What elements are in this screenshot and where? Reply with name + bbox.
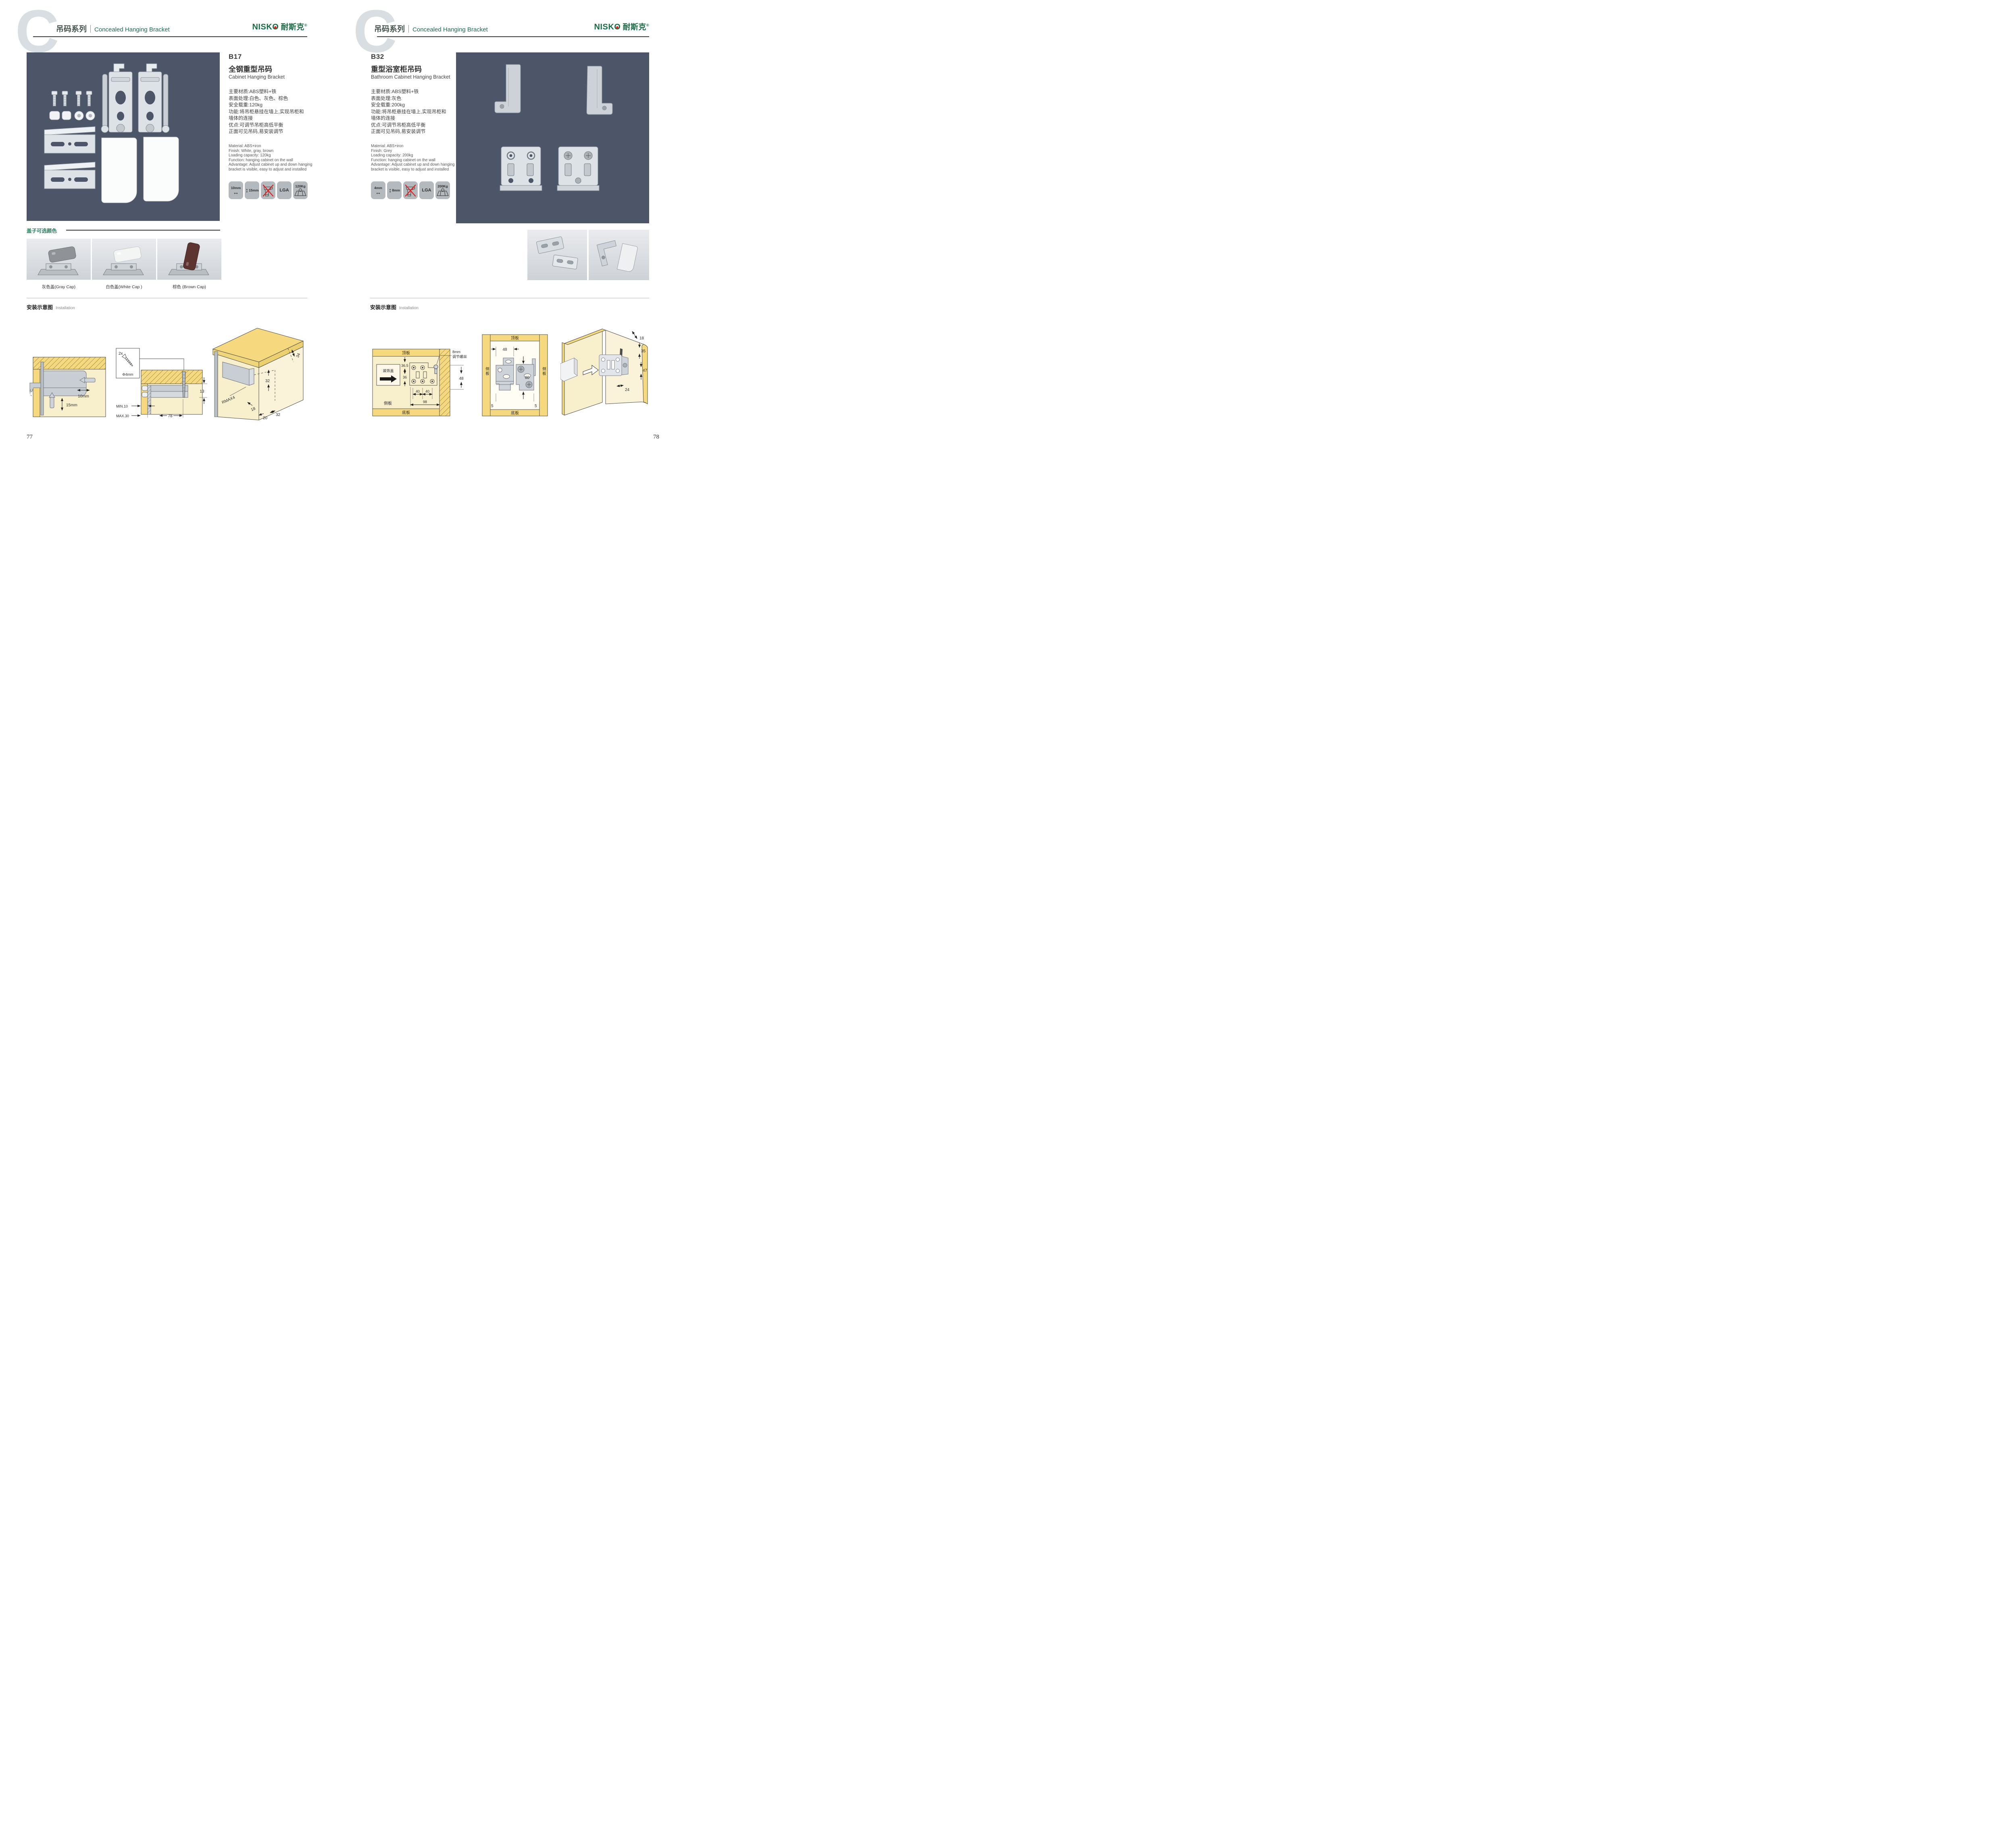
spec-line: bracket is visible, easy to adjust and i… — [229, 167, 312, 172]
dim-label: 48 — [502, 347, 507, 352]
cap-photo-gray — [27, 239, 91, 280]
dim-label: 10mm — [78, 394, 89, 399]
detail-photo-bracket-image — [589, 230, 649, 280]
logo-cn: 耐斯克 — [623, 23, 646, 31]
load-value: 120Kg — [295, 184, 306, 188]
spec-line: 功能:将吊柜悬挂在墙上,实现吊柜和 — [229, 108, 304, 115]
dim-label: 5 — [491, 404, 494, 408]
page-number-left: 77 — [27, 434, 33, 441]
installation-diagram-3-left: 34 32 RMAX4 18 20 32 — [209, 323, 306, 422]
section-divider-left — [27, 298, 307, 298]
installation-title-en: Installation — [56, 306, 75, 310]
feature-icons-right: 4mm ↔ ↕ 8mm LGA 200Kg — [371, 181, 450, 199]
spec-line: 表面处理:白色、灰色、棕色 — [229, 95, 304, 102]
spec-line: 正面可见吊码,易安装调节 — [371, 128, 446, 135]
nisko-logo: NISKO耐斯克® — [590, 21, 649, 32]
icon-tile-no-drill — [403, 181, 418, 199]
cap-label-gray: 灰色盖(Gray Cap) — [27, 284, 91, 290]
registered-mark: ® — [646, 23, 649, 27]
spec-line: 安全载重:120kg — [229, 102, 304, 108]
panel-label-top: 顶板 — [402, 350, 410, 356]
cert-label: LGA — [279, 188, 289, 193]
icon-tile-height: ↕ 15mm — [245, 181, 259, 199]
no-drill-icon — [404, 183, 417, 198]
dim-label: 20 — [263, 416, 268, 420]
horizontal-arrow-icon: ↔ — [375, 190, 381, 195]
panel-label-bottom: 底板 — [511, 410, 519, 416]
panel-label-side-right: 侧板 — [541, 367, 546, 376]
detail-photo-plates-image — [527, 230, 587, 280]
section-divider-right — [370, 298, 649, 298]
logo-cn: 耐斯克 — [281, 23, 304, 31]
icon-tile-cert: LGA — [419, 181, 434, 199]
specs-en-right: Material: ABS+iron Finish: Grey Loading … — [371, 144, 454, 172]
dim-label: 98 — [423, 400, 427, 404]
screw-dia-label: Φ4mm — [122, 372, 133, 376]
installation-diagram-1-right: 顶板 底板 侧板 装饰盖 36.5 36 40 — [371, 347, 472, 419]
spec-line: 墙体的连接 — [371, 115, 446, 122]
caps-section-title: 盖子可选颜色 — [27, 227, 57, 234]
installation-diagram-3-right: 18 35 47 24 — [560, 325, 652, 416]
catalog-spread: C 吊码系列Concealed Hanging Bracket NISKO耐斯克… — [0, 0, 676, 462]
panel-label-side-left: 侧板 — [484, 367, 489, 376]
screw-qty-label: 2x — [119, 352, 123, 356]
dim-label: 32 — [276, 413, 281, 417]
panel-label-top: 顶板 — [511, 335, 519, 341]
icon-tile-height: ↕ 8mm — [387, 181, 402, 199]
series-title-en: Concealed Hanging Bracket — [412, 26, 488, 33]
logo-o-target-icon: O — [614, 23, 621, 32]
dim-label: 18 — [639, 336, 644, 341]
cert-label: LGA — [422, 188, 431, 193]
series-header-right: 吊码系列Concealed Hanging Bracket — [374, 23, 488, 34]
load-value: 200Kg — [437, 184, 448, 188]
nisko-logo: NISKO耐斯克® — [248, 21, 307, 32]
product-photo-b17 — [27, 52, 220, 221]
product-title-cn-right: 重型浴室柜吊码 — [371, 64, 422, 74]
installation-title-cn: 安装示意图 — [27, 304, 53, 310]
specs-cn-left: 主要材质:ABS塑料+铁 表面处理:白色、灰色、棕色 安全载重:120kg 功能… — [229, 88, 304, 135]
product-code-b17: B17 — [229, 53, 242, 61]
installation-title-left: 安装示意图Installation — [27, 303, 75, 311]
feature-icons-left: 10mm ↔ ↕ 15mm LGA 120Kg — [229, 181, 308, 199]
cover-label: 装饰盖 — [383, 368, 394, 373]
installation-diagram-1-left: 10mm 15mm — [28, 347, 109, 420]
dim-label: 40 — [425, 389, 429, 393]
spec-line: Advantage: Adjust cabinet up and down ha… — [229, 162, 312, 167]
series-title-cn: 吊码系列 — [56, 25, 87, 33]
specs-en-left: Material: ABS+iron Finish: White, gray, … — [229, 144, 312, 172]
installation-title-en: Installation — [399, 306, 419, 310]
vertical-arrow-icon: ↕ — [245, 188, 248, 193]
screw-label-2: 调节螺丝 — [452, 354, 467, 359]
spec-line: Material: ABS+iron — [371, 144, 454, 149]
panel-label-side: 侧板 — [384, 401, 392, 406]
icon-tile-width: 10mm ↔ — [229, 181, 243, 199]
dim-label: 15mm — [66, 403, 77, 408]
cap-label-white: 白色盖(White Cap ) — [92, 284, 156, 290]
logo-text: NISK — [252, 23, 272, 31]
product-code-b32: B32 — [371, 53, 384, 61]
dim-label: 80 — [525, 376, 530, 380]
product-title-cn-left: 全钢重型吊码 — [229, 64, 272, 74]
installation-diagram-2-right: 顶板 底板 48 80 5 5 — [481, 333, 549, 418]
product-photo-b32-image — [456, 52, 649, 223]
product-photo-b17-image — [27, 52, 220, 221]
dim-label: 13 — [200, 389, 204, 394]
installation-title-cn: 安装示意图 — [370, 304, 396, 310]
series-header-left: 吊码系列Concealed Hanging Bracket — [56, 23, 170, 34]
header-separator — [90, 25, 91, 33]
screw-label-1: 8mm — [452, 350, 460, 354]
spec-line: 主要材质:ABS塑料+铁 — [229, 88, 304, 95]
specs-cn-right: 主要材质:ABS塑料+铁 表面处理:灰色 安全载重:200kg 功能:将吊柜悬挂… — [371, 88, 446, 135]
series-title-cn: 吊码系列 — [374, 25, 405, 33]
icon-tile-load: 200Kg — [435, 181, 450, 199]
header-rule-left — [33, 36, 307, 37]
no-drill-icon — [262, 183, 274, 198]
logo-o-target-icon: O — [272, 23, 279, 32]
height-value: 15mm — [249, 188, 259, 192]
cap-photo-brown — [157, 239, 221, 280]
dim-label: 24 — [625, 388, 630, 392]
caps-section-rule — [66, 230, 220, 231]
spec-line: Function: hanging cabinet on the wall — [229, 158, 312, 163]
dim-label: 5 — [535, 404, 537, 408]
panel-label-bottom: 底板 — [402, 410, 410, 415]
installation-title-right: 安装示意图Installation — [370, 303, 419, 311]
page-number-right: 78 — [653, 434, 659, 441]
spec-line: Finish: Grey — [371, 149, 454, 154]
horizontal-arrow-icon: ↔ — [233, 190, 239, 195]
registered-mark: ® — [304, 23, 307, 27]
spec-line: Loading capacity: 200kg — [371, 153, 454, 158]
icon-tile-cert: LGA — [277, 181, 292, 199]
spec-line: 正面可见吊码,易安装调节 — [229, 128, 304, 135]
dim-label: 32 — [265, 379, 270, 383]
brown-cap-image — [157, 239, 221, 280]
dim-label: MIN.10 — [116, 404, 128, 408]
weight-icon — [436, 188, 450, 196]
dim-label: 36 — [403, 375, 407, 379]
cap-photo-white — [92, 239, 156, 280]
weight-icon — [294, 188, 307, 196]
spec-line: 表面处理:灰色 — [371, 95, 446, 102]
detail-photo-plates — [527, 230, 587, 280]
spec-line: 优点:可调节吊柜高低平衡 — [371, 122, 446, 129]
header-rule-right — [377, 36, 649, 37]
spec-line: 墙体的连接 — [229, 115, 304, 122]
dim-label: MAX.30 — [116, 414, 129, 418]
product-title-en-left: Cabinet Hanging Bracket — [229, 74, 285, 80]
dim-label: 36.5 — [401, 364, 408, 368]
dim-label: 35 — [641, 349, 646, 354]
height-value: 8mm — [392, 188, 400, 192]
series-title-en: Concealed Hanging Bracket — [94, 26, 170, 33]
spec-line: 主要材质:ABS塑料+铁 — [371, 88, 446, 95]
spec-line: 安全载重:200kg — [371, 102, 446, 108]
spec-line: bracket is visible, easy to adjust and i… — [371, 167, 454, 172]
icon-tile-width: 4mm ↔ — [371, 181, 385, 199]
cap-label-brown: 棕色 (Brown Cap) — [157, 284, 221, 290]
spec-line: Material: ABS+iron — [229, 144, 312, 149]
spec-line: Loading capacity: 120kg — [229, 153, 312, 158]
product-photo-b32 — [456, 52, 649, 223]
icon-tile-load: 120Kg — [293, 181, 308, 199]
gray-cap-image — [27, 239, 91, 280]
detail-photo-bracket — [589, 230, 649, 280]
logo-text: NISK — [594, 23, 614, 31]
spec-line: 优点:可调节吊柜高低平衡 — [229, 122, 304, 129]
spec-line: Finish: White, gray, brown — [229, 149, 312, 154]
vertical-arrow-icon: ↕ — [389, 188, 392, 193]
icon-tile-no-drill — [261, 181, 275, 199]
spec-line: Advantage: Adjust cabinet up and down ha… — [371, 162, 454, 167]
spec-line: 功能:将吊柜悬挂在墙上,实现吊柜和 — [371, 108, 446, 115]
dim-label: 48 — [459, 376, 464, 381]
dim-label: 40 — [416, 389, 420, 393]
dim-label: 78 — [168, 414, 173, 418]
installation-diagram-2-left: 2x Φ4mm 13 MIN. — [115, 347, 208, 421]
dim-label: 47 — [643, 368, 648, 373]
white-cap-image — [92, 239, 156, 280]
product-title-en-right: Bathroom Cabinet Hanging Bracket — [371, 74, 450, 80]
header-separator — [408, 25, 409, 33]
spec-line: Function: hanging cabinet on the wall — [371, 158, 454, 163]
